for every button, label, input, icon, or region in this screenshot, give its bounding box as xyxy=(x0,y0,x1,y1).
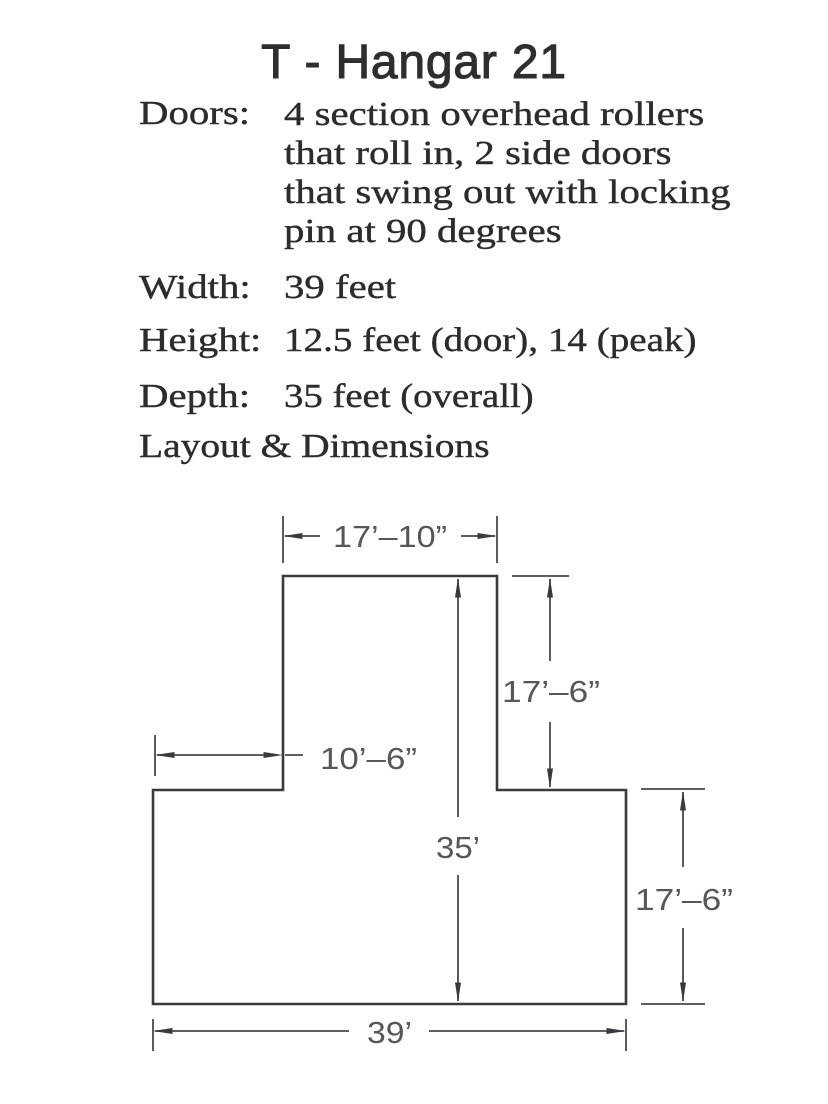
svg-text:35’: 35’ xyxy=(436,830,480,865)
svg-text:10’–6”: 10’–6” xyxy=(320,741,417,776)
svg-text:17’–6”: 17’–6” xyxy=(502,674,600,709)
svg-text:17’–6”: 17’–6” xyxy=(635,882,733,917)
svg-text:39’: 39’ xyxy=(367,1015,412,1050)
svg-text:17’–10”: 17’–10” xyxy=(333,519,447,554)
